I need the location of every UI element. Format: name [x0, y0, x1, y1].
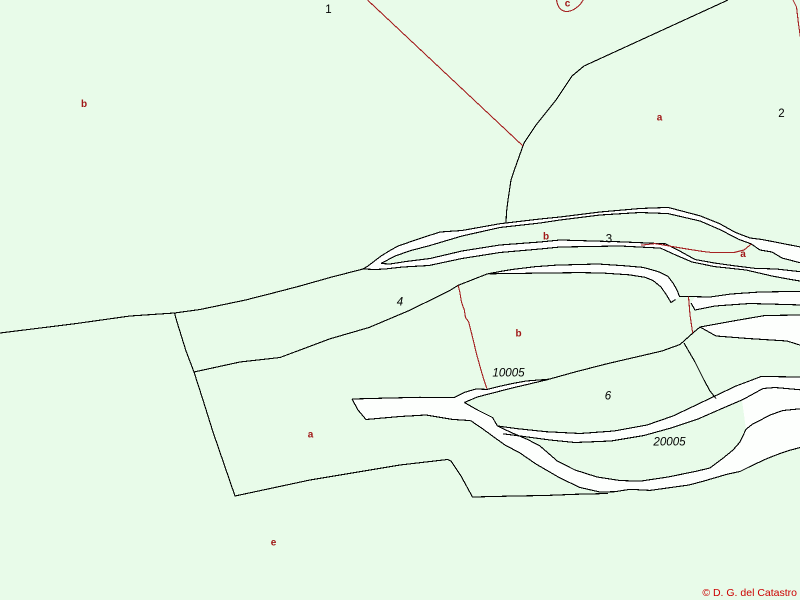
- svg-text:1: 1: [325, 4, 331, 16]
- svg-text:6: 6: [605, 391, 612, 403]
- svg-text:b: b: [81, 99, 87, 110]
- svg-text:3: 3: [606, 234, 612, 246]
- svg-text:c: c: [565, 0, 571, 10]
- svg-text:10005: 10005: [492, 367, 525, 380]
- svg-text:20005: 20005: [652, 436, 686, 449]
- svg-text:a: a: [657, 113, 663, 124]
- svg-text:2: 2: [778, 108, 784, 120]
- svg-text:4: 4: [397, 297, 403, 309]
- svg-text:© D. G. del Catastro: © D. G. del Catastro: [702, 587, 797, 599]
- svg-text:e: e: [271, 538, 277, 549]
- svg-text:b: b: [543, 232, 549, 243]
- svg-text:a: a: [740, 249, 746, 260]
- svg-text:a: a: [308, 430, 314, 441]
- svg-text:b: b: [515, 329, 521, 340]
